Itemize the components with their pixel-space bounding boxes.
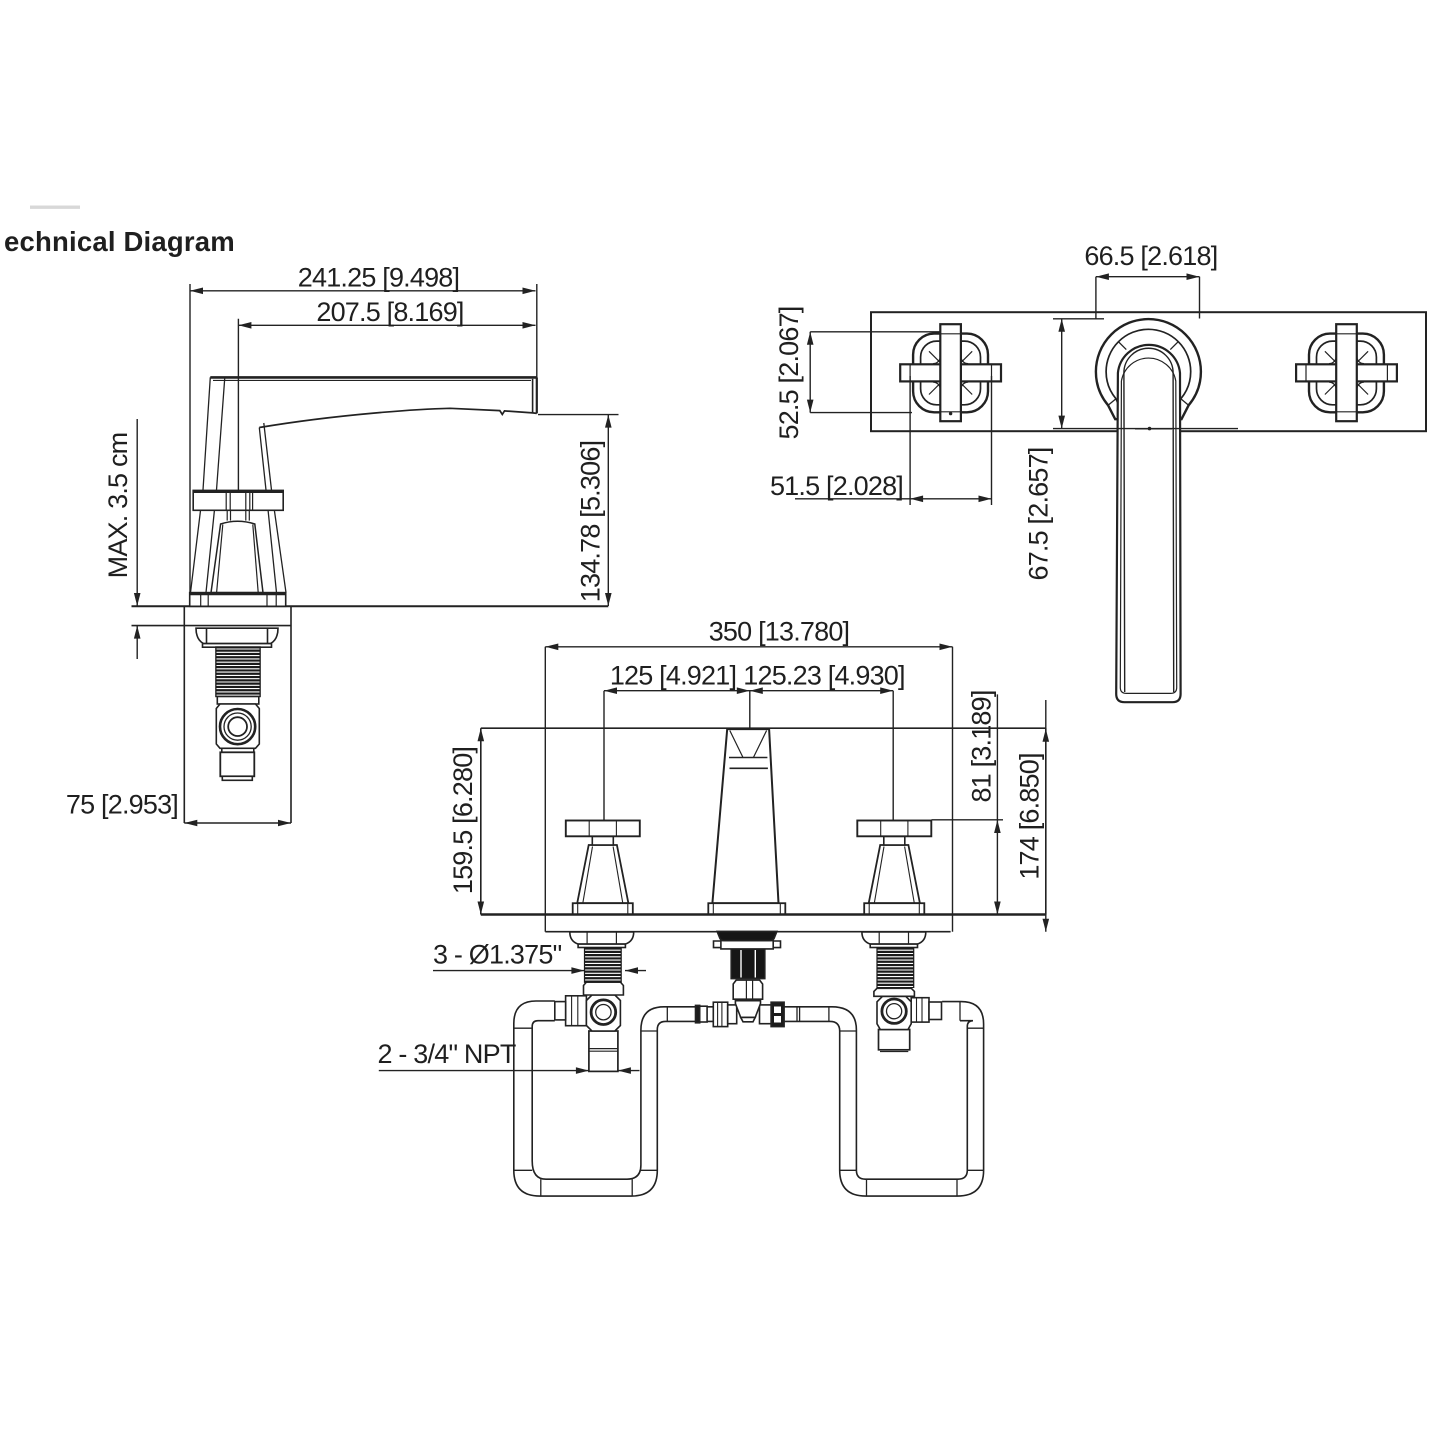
svg-text:67.5 [2.657]: 67.5 [2.657] (1024, 447, 1054, 580)
svg-text:125.23 [4.930]: 125.23 [4.930] (743, 661, 904, 691)
svg-text:207.5 [8.169]: 207.5 [8.169] (316, 297, 463, 327)
svg-text:75 [2.953]: 75 [2.953] (66, 790, 178, 820)
svg-text:52.5 [2.067]: 52.5 [2.067] (774, 306, 804, 439)
svg-text:MAX. 3.5 cm: MAX. 3.5 cm (103, 433, 133, 579)
svg-text:2 - 3/4" NPT: 2 - 3/4" NPT (378, 1039, 516, 1069)
svg-text:125 [4.921]: 125 [4.921] (610, 661, 736, 691)
svg-text:241.25 [9.498]: 241.25 [9.498] (298, 263, 459, 293)
svg-text:134.78 [5.306]: 134.78 [5.306] (576, 441, 606, 602)
svg-text:174 [6.850]: 174 [6.850] (1015, 753, 1045, 879)
svg-text:350 [13.780]: 350 [13.780] (709, 616, 850, 646)
svg-text:66.5 [2.618]: 66.5 [2.618] (1084, 241, 1217, 271)
svg-text:3 - Ø1.375": 3 - Ø1.375" (433, 940, 562, 970)
svg-text:81 [3.189]: 81 [3.189] (967, 690, 997, 802)
svg-text:echnical Diagram: echnical Diagram (4, 226, 235, 257)
svg-text:51.5 [2.028]: 51.5 [2.028] (770, 471, 903, 501)
svg-text:159.5 [6.280]: 159.5 [6.280] (448, 747, 478, 894)
